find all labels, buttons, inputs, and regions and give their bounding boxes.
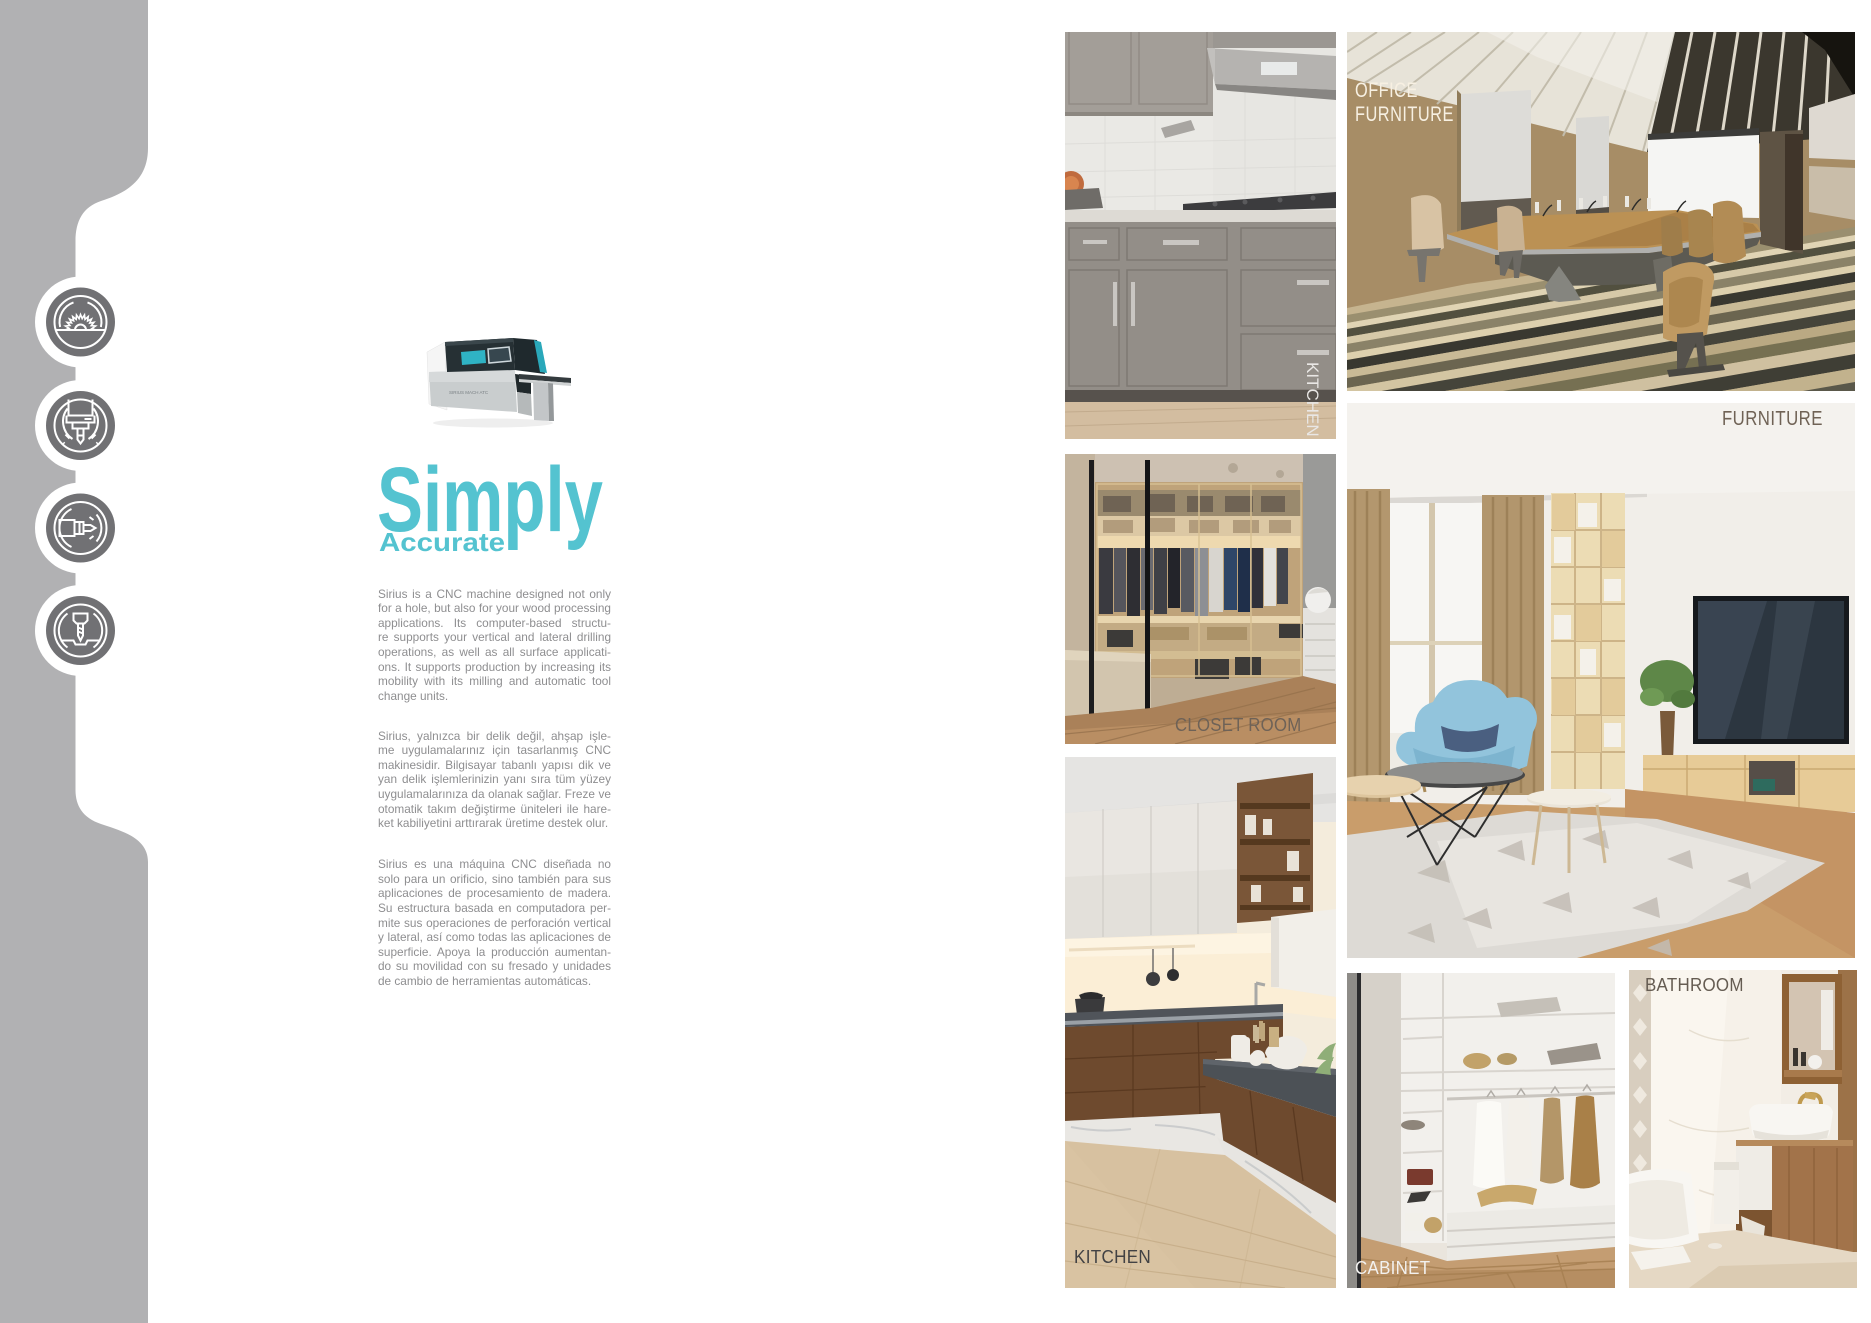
- svg-text:SIRIUS MACH ATC: SIRIUS MACH ATC: [449, 390, 489, 395]
- svg-text:Accurate: Accurate: [379, 527, 505, 557]
